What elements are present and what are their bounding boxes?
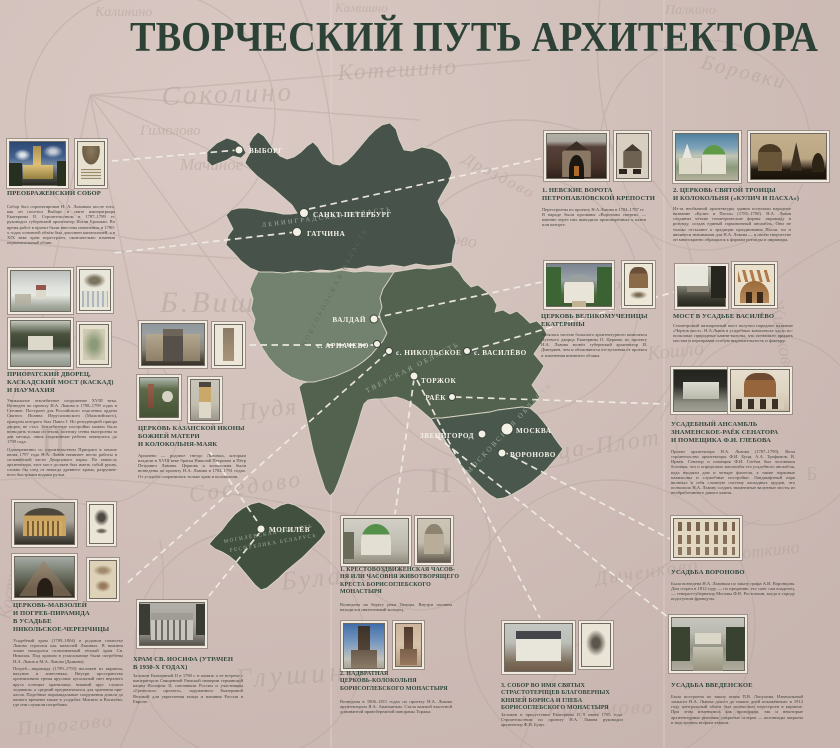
svg-text:ТВОРЧЕСКИЙ ПУТЬ АРХИТЕКТОРА: ТВОРЧЕСКИЙ ПУТЬ АРХИТЕКТОРА: [130, 15, 819, 61]
svg-text:с. ВАСИЛЁВО: с. ВАСИЛЁВО: [474, 348, 527, 357]
svg-text:с. АРПАЧЕВО: с. АРПАЧЕВО: [317, 342, 369, 350]
svg-text:ЗВЕНИГОРОД: ЗВЕНИГОРОД: [420, 432, 474, 440]
svg-text:ТОРЖОК: ТОРЖОК: [421, 377, 456, 385]
svg-text:ВЫБОРГ: ВЫБОРГ: [249, 147, 283, 155]
svg-text:ГАТЧИНА: ГАТЧИНА: [307, 230, 346, 238]
svg-text:ВАЛДАЙ: ВАЛДАЙ: [332, 315, 366, 324]
svg-text:РАЁК: РАЁК: [425, 393, 446, 402]
svg-text:ВОРОНОВО: ВОРОНОВО: [510, 451, 556, 459]
svg-text:МОСКВА: МОСКВА: [516, 427, 552, 435]
svg-text:САНКТ-ПЕТЕРБУРГ: САНКТ-ПЕТЕРБУРГ: [313, 211, 392, 219]
svg-text:с. НИКОЛЬСКОЕ: с. НИКОЛЬСКОЕ: [396, 349, 461, 357]
svg-text:МОГИЛЁВ: МОГИЛЁВ: [269, 525, 310, 534]
